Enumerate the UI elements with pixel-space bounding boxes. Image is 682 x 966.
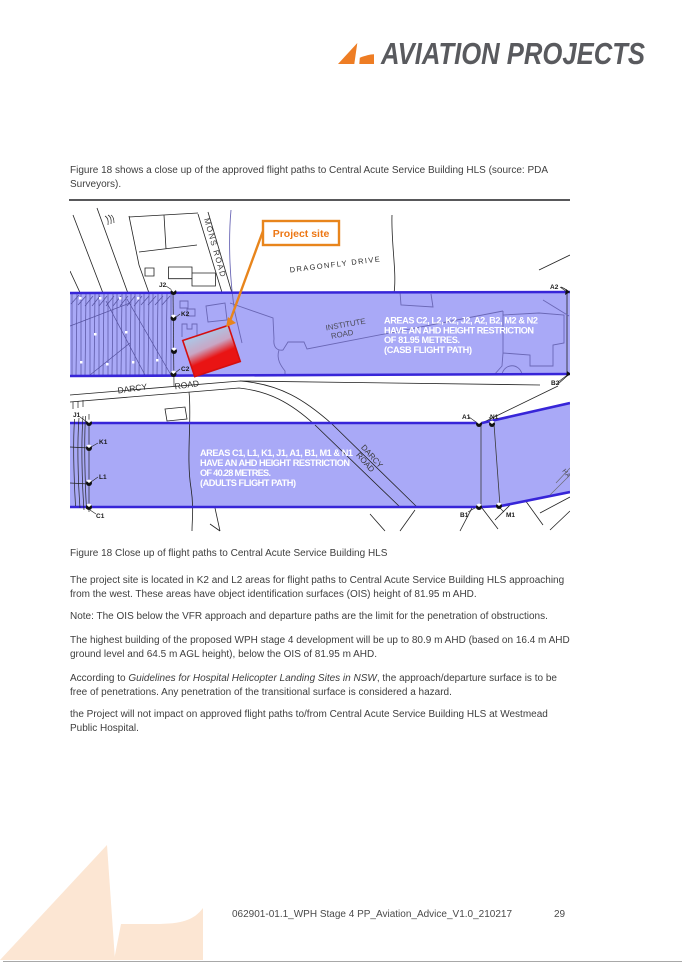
svg-text:DARCY: DARCY: [117, 381, 148, 395]
svg-text:AREAS C2, L2, K2, J2, A2, B2,: AREAS C2, L2, K2, J2, A2, B2, M2 & N2: [384, 316, 538, 326]
svg-text:HAVE AN AHD HEIGHT RESTRICTION: HAVE AN AHD HEIGHT RESTRICTION: [200, 458, 350, 468]
svg-text:OF 40.28 METRES.: OF 40.28 METRES.: [200, 468, 271, 478]
svg-text:A2: A2: [550, 284, 559, 291]
svg-text:B1: B1: [460, 512, 469, 519]
svg-text:M1: M1: [506, 512, 515, 519]
svg-text:B2: B2: [551, 380, 560, 387]
svg-text:(ADULTS FLIGHT PATH): (ADULTS FLIGHT PATH): [200, 478, 296, 488]
svg-text:J2: J2: [159, 282, 167, 289]
svg-text:OF 81.95 METRES.: OF 81.95 METRES.: [384, 335, 460, 345]
svg-text:AREAS C1, L1, K1, J1, A1, B1,: AREAS C1, L1, K1, J1, A1, B1, M1 & N1: [200, 448, 353, 458]
svg-text:DRAGONFLY DRIVE: DRAGONFLY DRIVE: [289, 254, 381, 274]
svg-text:K2: K2: [181, 311, 190, 318]
svg-text:J1: J1: [73, 412, 81, 419]
svg-text:ROAD: ROAD: [174, 378, 200, 391]
svg-text:N1: N1: [490, 414, 499, 421]
svg-text:L1: L1: [99, 474, 107, 481]
svg-text:A1: A1: [462, 414, 471, 421]
svg-text:(CASB FLIGHT PATH): (CASB FLIGHT PATH): [384, 345, 472, 355]
svg-text:C2: C2: [181, 366, 190, 373]
svg-text:Project site: Project site: [273, 228, 330, 240]
svg-text:K1: K1: [99, 439, 108, 446]
svg-text:HAVE AN AHD HEIGHT RESTRICTION: HAVE AN AHD HEIGHT RESTRICTION: [384, 325, 534, 335]
svg-text:C1: C1: [96, 513, 105, 520]
